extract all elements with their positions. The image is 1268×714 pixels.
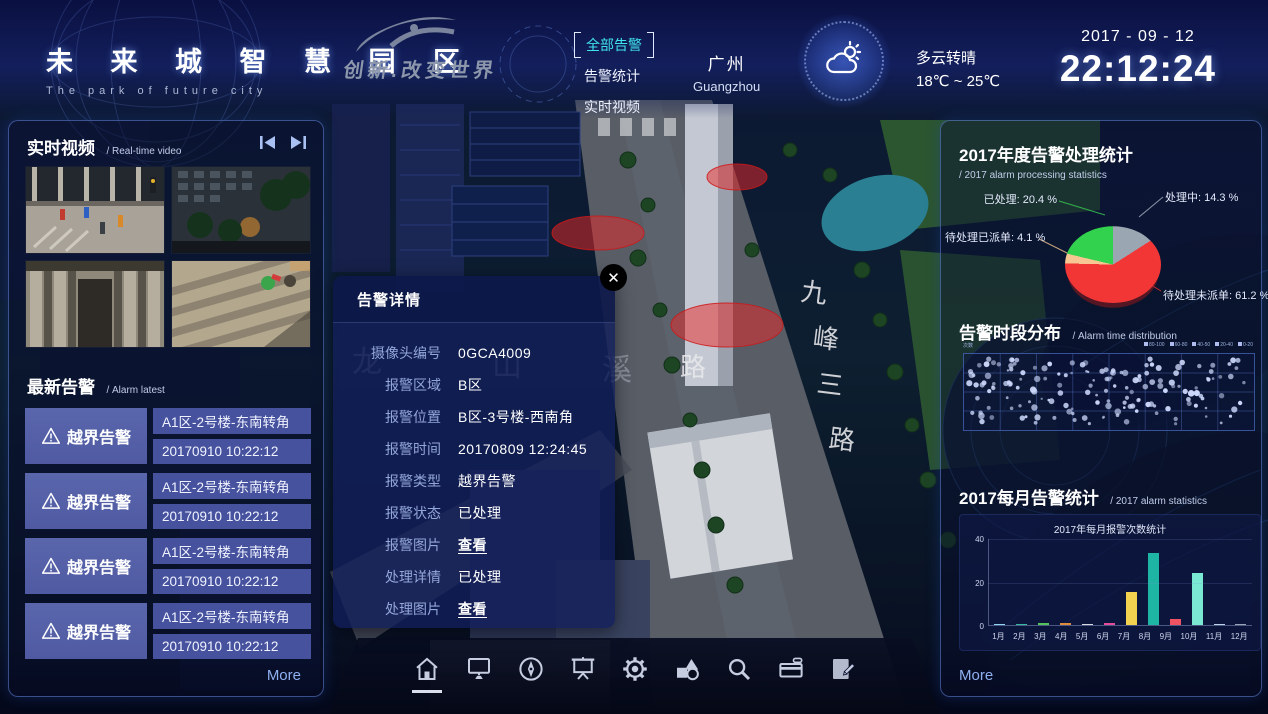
warning-icon bbox=[41, 621, 61, 641]
alarm-type-badge: 越界告警 bbox=[25, 538, 147, 594]
alarm-time: 20170910 10:22:12 bbox=[153, 439, 311, 465]
bar bbox=[1235, 624, 1246, 625]
pie-chart: 已处理: 20.4 % 处理中: 14.3 % 待处理已派单: 4.1 % 待处… bbox=[941, 181, 1261, 331]
nav-realtime-video[interactable]: 实时视频 bbox=[578, 96, 646, 118]
legend-item: 60-80 bbox=[1170, 342, 1188, 348]
weather-temp: 18℃ ~ 25℃ bbox=[916, 70, 1000, 93]
popup-field: 报警类型 越界告警 bbox=[353, 465, 599, 497]
video-thumbnail-building[interactable] bbox=[171, 166, 311, 254]
monitor-icon[interactable] bbox=[464, 654, 494, 684]
popup-field: 处理图片 查看 bbox=[353, 593, 599, 625]
close-icon[interactable]: ✕ bbox=[600, 264, 627, 291]
svg-text:峰: 峰 bbox=[811, 322, 840, 355]
alarm-item[interactable]: 越界告警 A1区-2号楼-东南转角 20170910 10:22:12 bbox=[25, 473, 311, 529]
bar bbox=[1060, 623, 1071, 625]
pie-label-pending-undispatched: 待处理未派单: 61.2 % bbox=[1163, 287, 1268, 303]
pie-label-processed: 已处理: 20.4 % bbox=[955, 191, 1057, 207]
weather-text: 多云转晴 18℃ ~ 25℃ bbox=[916, 47, 1000, 93]
svg-text:九: 九 bbox=[799, 276, 828, 309]
field-label: 报警图片 bbox=[353, 535, 441, 555]
alarm-detail-popup: 告警详情 摄像头编号 0GCA4009 报警区域 B区 报警位置 B区-3号楼-… bbox=[333, 276, 615, 628]
skip-next-button[interactable] bbox=[290, 135, 307, 150]
alarm-type-badge: 越界告警 bbox=[25, 473, 147, 529]
app-subtitle: The park of future city bbox=[46, 85, 475, 97]
city-block: 广州 Guangzhou bbox=[693, 50, 760, 94]
field-label: 处理图片 bbox=[353, 599, 441, 619]
field-label: 处理详情 bbox=[353, 567, 441, 587]
scatter-legend: 80-10060-8040-5020-400-20 bbox=[1144, 342, 1253, 348]
bar-x-labels: 1月2月3月4月5月6月7月8月9月10月11月12月 bbox=[988, 631, 1252, 642]
pie-graphic bbox=[1065, 226, 1161, 303]
bar-x-label: 7月 bbox=[1118, 631, 1130, 642]
video-grid bbox=[25, 166, 307, 348]
popup-field: 摄像头编号 0GCA4009 bbox=[353, 337, 599, 369]
field-label: 报警区域 bbox=[353, 375, 441, 395]
logo-swoosh-icon bbox=[336, 12, 486, 60]
bar-x-label: 12月 bbox=[1231, 631, 1248, 642]
projection-screen-icon[interactable] bbox=[568, 654, 598, 684]
field-label: 摄像头编号 bbox=[353, 343, 441, 363]
bar-x-label: 11月 bbox=[1206, 631, 1222, 642]
bar-x-label: 3月 bbox=[1034, 631, 1046, 642]
warning-icon bbox=[41, 426, 61, 446]
field-value: 越界告警 bbox=[458, 471, 516, 491]
pie-section-subtitle: / 2017 alarm processing statistics bbox=[959, 170, 1107, 181]
company-logo: 创新.改变世界 bbox=[336, 12, 486, 60]
bar-y-tick: 40 bbox=[968, 535, 984, 544]
search-icon[interactable] bbox=[724, 654, 754, 684]
alarm-location: A1区-2号楼-东南转角 bbox=[153, 473, 311, 499]
bar bbox=[1082, 624, 1093, 626]
legend-item: 0-20 bbox=[1238, 342, 1253, 348]
field-label: 报警时间 bbox=[353, 439, 441, 459]
alarm-time: 20170910 10:22:12 bbox=[153, 634, 311, 660]
compass-icon[interactable] bbox=[516, 654, 546, 684]
scatter-meta: 次数 80-10060-8040-5020-400-20 bbox=[963, 342, 1253, 350]
gear-icon[interactable] bbox=[620, 654, 650, 684]
alarm-type-badge: 越界告警 bbox=[25, 408, 147, 464]
bar-x-label: 1月 bbox=[992, 631, 1004, 642]
field-value[interactable]: 查看 bbox=[458, 535, 487, 555]
city-name-cn: 广州 bbox=[693, 50, 760, 75]
bar-chart-title: 2017年每月报警次数统计 bbox=[960, 521, 1260, 536]
city-name-en: Guangzhou bbox=[693, 79, 760, 94]
pie-section-title: 2017年度告警处理统计 bbox=[959, 146, 1133, 165]
svg-text:路: 路 bbox=[827, 423, 856, 456]
nav-alarm-stats[interactable]: 告警统计 bbox=[578, 65, 646, 87]
video-section-title: 实时视频 bbox=[27, 139, 95, 158]
alarm-time: 20170910 10:22:12 bbox=[153, 504, 311, 530]
alarm-item[interactable]: 越界告警 A1区-2号楼-东南转角 20170910 10:22:12 bbox=[25, 408, 311, 464]
scatter-chart bbox=[963, 353, 1255, 431]
alarm-item[interactable]: 越界告警 A1区-2号楼-东南转角 20170910 10:22:12 bbox=[25, 538, 311, 594]
scatter-section-subtitle: / Alarm time distribution bbox=[1072, 331, 1176, 342]
alarm-location: A1区-2号楼-东南转角 bbox=[153, 538, 311, 564]
field-value: 已处理 bbox=[458, 567, 502, 587]
legend-item: 40-50 bbox=[1192, 342, 1210, 348]
smart-park-dashboard: { "header": { "title": "未 来 城 智 慧 园 区", … bbox=[0, 0, 1268, 714]
field-value: B区 bbox=[458, 375, 482, 395]
video-thumbnail-lobby[interactable] bbox=[25, 260, 165, 348]
field-label: 报警类型 bbox=[353, 471, 441, 491]
video-section-subtitle: / Real-time video bbox=[106, 146, 181, 157]
date-display: 2017 - 09 - 12 bbox=[1060, 28, 1216, 46]
stats-more-link[interactable]: More bbox=[959, 667, 993, 684]
nav-all-alarms[interactable]: 全部告警 bbox=[580, 34, 648, 56]
popup-field: 报警图片 查看 bbox=[353, 529, 599, 561]
bar bbox=[1148, 553, 1159, 625]
bar bbox=[1104, 623, 1115, 625]
weather-widget bbox=[797, 14, 891, 108]
weather-condition: 多云转晴 bbox=[916, 47, 1000, 70]
alarm-section-title: 最新告警 bbox=[27, 378, 95, 397]
bar bbox=[1214, 624, 1225, 625]
popup-field: 处理详情 已处理 bbox=[353, 561, 599, 593]
edit-icon[interactable] bbox=[828, 654, 858, 684]
bar-x-label: 10月 bbox=[1181, 631, 1198, 642]
top-nav: 全部告警 告警统计 实时视频 bbox=[578, 34, 648, 127]
warning-icon bbox=[41, 491, 61, 511]
field-value: 20170809 12:24:45 bbox=[458, 441, 587, 457]
alarm-time: 20170910 10:22:12 bbox=[153, 569, 311, 595]
left-panel: 实时视频 / Real-time video bbox=[8, 120, 324, 697]
header: 未 来 城 智 慧 园 区 The park of future city 创新… bbox=[0, 0, 1268, 118]
popup-field: 报警时间 20170809 12:24:45 bbox=[353, 433, 599, 465]
bar bbox=[1016, 624, 1027, 625]
legend-item: 80-100 bbox=[1144, 342, 1165, 348]
popup-field: 报警位置 B区-3号楼-西南角 bbox=[353, 401, 599, 433]
bar-x-label: 9月 bbox=[1160, 631, 1172, 642]
field-value: 0GCA4009 bbox=[458, 345, 531, 361]
bar-y-tick: 20 bbox=[968, 579, 984, 588]
alarm-list: 越界告警 A1区-2号楼-东南转角 20170910 10:22:12 越界告警… bbox=[25, 408, 311, 668]
bar bbox=[1170, 619, 1181, 626]
scatter-section-title: 告警时段分布 bbox=[959, 324, 1061, 343]
bar-x-label: 2月 bbox=[1013, 631, 1025, 642]
alarm-item[interactable]: 越界告警 A1区-2号楼-东南转角 20170910 10:22:12 bbox=[25, 603, 311, 659]
pie-label-pending-dispatched: 待处理已派单: 4.1 % bbox=[945, 229, 1045, 245]
bar-x-label: 8月 bbox=[1139, 631, 1151, 642]
field-label: 报警位置 bbox=[353, 407, 441, 427]
bottom-toolbar bbox=[330, 638, 940, 714]
svg-text:三: 三 bbox=[815, 368, 844, 401]
shapes-icon[interactable] bbox=[672, 654, 702, 684]
bar-section-title: 2017每月告警统计 bbox=[959, 489, 1099, 508]
bar-x-label: 4月 bbox=[1055, 631, 1067, 642]
svg-text:路: 路 bbox=[680, 352, 706, 382]
video-thumbnail-stairs[interactable] bbox=[171, 260, 311, 348]
popup-field: 报警区域 B区 bbox=[353, 369, 599, 401]
bar bbox=[1038, 623, 1049, 625]
bar-chart: 2017年每月报警次数统计 1月2月3月4月5月6月7月8月9月10月11月12… bbox=[959, 514, 1261, 651]
bar-section-subtitle: / 2017 alarm statistics bbox=[1110, 496, 1207, 507]
field-value: B区-3号楼-西南角 bbox=[458, 407, 573, 427]
bar-x-label: 6月 bbox=[1097, 631, 1109, 642]
logo-slogan: 创新.改变世界 bbox=[342, 54, 500, 83]
field-value: 已处理 bbox=[458, 503, 502, 523]
popup-field: 报警状态 已处理 bbox=[353, 497, 599, 529]
video-thumbnail-street[interactable] bbox=[25, 166, 165, 254]
popup-title: 告警详情 bbox=[333, 276, 615, 323]
alarm-location: A1区-2号楼-东南转角 bbox=[153, 408, 311, 434]
partly-cloudy-icon bbox=[823, 39, 865, 81]
scatter-axis-label: 次数 bbox=[963, 343, 973, 349]
bar-x-label: 5月 bbox=[1076, 631, 1088, 642]
legend-item: 20-40 bbox=[1215, 342, 1233, 348]
bar bbox=[1126, 592, 1137, 625]
alarm-section-subtitle: / Alarm latest bbox=[106, 385, 164, 396]
alarm-type-badge: 越界告警 bbox=[25, 603, 147, 659]
alarm-more-link[interactable]: More bbox=[267, 667, 301, 684]
warning-icon bbox=[41, 556, 61, 576]
skip-previous-button[interactable] bbox=[259, 135, 276, 150]
bar-y-tick: 0 bbox=[968, 622, 984, 631]
bar bbox=[994, 624, 1005, 625]
right-panel: 2017年度告警处理统计 / 2017 alarm processing sta… bbox=[940, 120, 1262, 697]
home-icon[interactable] bbox=[412, 654, 442, 684]
card-reader-icon[interactable] bbox=[776, 654, 806, 684]
time-display: 22:12:24 bbox=[1060, 48, 1216, 90]
ring-decoration bbox=[496, 22, 580, 106]
field-label: 报警状态 bbox=[353, 503, 441, 523]
pie-label-processing: 处理中: 14.3 % bbox=[1165, 189, 1238, 205]
bar bbox=[1192, 573, 1203, 625]
clock: 2017 - 09 - 12 22:12:24 bbox=[1060, 28, 1216, 90]
popup-body: 摄像头编号 0GCA4009 报警区域 B区 报警位置 B区-3号楼-西南角 报… bbox=[333, 323, 615, 625]
field-value[interactable]: 查看 bbox=[458, 599, 487, 619]
alarm-location: A1区-2号楼-东南转角 bbox=[153, 603, 311, 629]
